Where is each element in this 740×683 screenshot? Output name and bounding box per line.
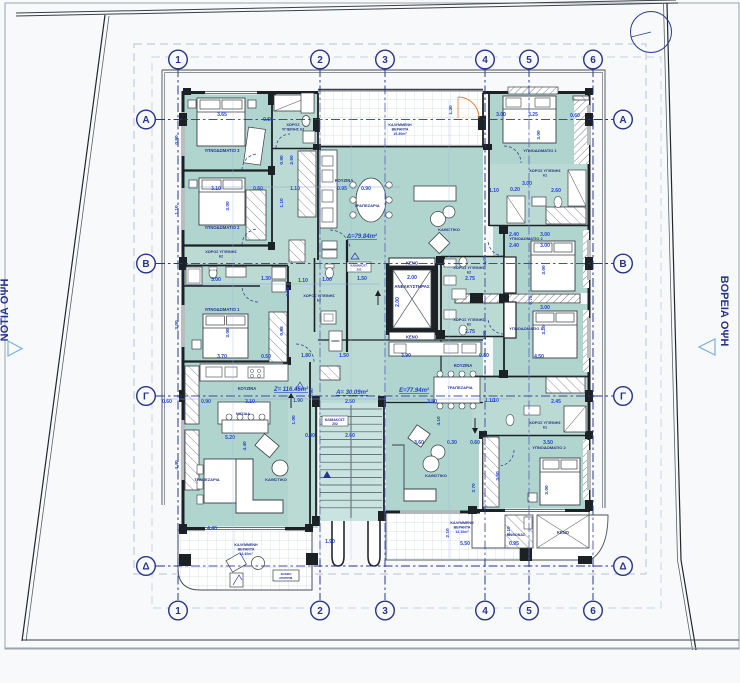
svg-text:Δ: Δ — [142, 562, 149, 573]
svg-text:Α: Α — [142, 115, 149, 126]
svg-text:3.00: 3.00 — [536, 130, 542, 140]
svg-text:ΧΩΡΟΣ ΥΓΙΕΙΝΗΣ: ΧΩΡΟΣ ΥΓΙΕΙΝΗΣ — [453, 266, 485, 270]
svg-text:Β: Β — [619, 259, 626, 270]
svg-text:Γ: Γ — [620, 392, 626, 403]
svg-text:ΒΟΡΕΙΑ ΟΨΗ: ΒΟΡΕΙΑ ΟΨΗ — [718, 276, 730, 347]
svg-text:3.00: 3.00 — [544, 485, 550, 495]
svg-text:2.60: 2.60 — [551, 188, 561, 194]
svg-text:Α= 30.09m²: Α= 30.09m² — [335, 389, 369, 396]
svg-text:3.00: 3.00 — [541, 265, 547, 275]
svg-text:ΚΟΥΖΙΝΑ: ΚΟΥΖΙΝΑ — [335, 178, 354, 183]
svg-text:ΥΠΝΟΔΩΜΑΤΙΟ 2: ΥΠΝΟΔΩΜΑΤΙΟ 2 — [205, 225, 241, 230]
svg-text:1.50: 1.50 — [339, 353, 349, 359]
svg-text:Z= 116.45m²: Z= 116.45m² — [273, 386, 309, 393]
svg-text:ΚΟΥΖΙΝΑ: ΚΟΥΖΙΝΑ — [238, 386, 257, 391]
svg-text:0.30: 0.30 — [447, 440, 457, 446]
svg-text:3.60: 3.60 — [414, 440, 424, 446]
svg-text:2.75: 2.75 — [465, 276, 475, 282]
svg-text:0.60: 0.60 — [263, 117, 273, 123]
svg-text:1.30: 1.30 — [261, 276, 271, 282]
svg-text:ΚΕΝΟ: ΚΕΝΟ — [406, 335, 419, 340]
svg-text:0.20: 0.20 — [510, 187, 520, 193]
svg-text:ΚΑΘΙΣΤΙΚΟ: ΚΑΘΙΣΤΙΚΟ — [265, 477, 287, 482]
svg-text:ΚΑΛΥΜΜΕΝΗ: ΚΑΛΥΜΜΕΝΗ — [234, 543, 258, 547]
svg-text:0.50: 0.50 — [261, 354, 271, 360]
svg-text:3.50: 3.50 — [495, 471, 501, 481]
svg-text:3.00: 3.00 — [211, 277, 221, 283]
svg-text:3.70: 3.70 — [217, 354, 227, 360]
svg-text:ΚΕΝΟ: ΚΕΝΟ — [557, 530, 570, 535]
svg-text:2.40: 2.40 — [509, 232, 519, 238]
svg-text:61: 61 — [543, 426, 547, 430]
svg-text:4.40: 4.40 — [174, 460, 180, 470]
svg-text:2.40: 2.40 — [509, 243, 519, 249]
svg-text:2: 2 — [317, 606, 323, 617]
svg-text:3.00: 3.00 — [540, 243, 550, 249]
svg-text:3.00: 3.00 — [225, 201, 231, 211]
svg-text:2.00: 2.00 — [407, 275, 417, 281]
svg-text:ΚΑΛΥΜΜΕΝΗ: ΚΑΛΥΜΜΕΝΗ — [450, 521, 474, 525]
svg-text:1: 1 — [175, 606, 181, 617]
svg-text:ΧΩΡΟΣ ΥΓΙΕΙΝΗΣ: ΧΩΡΟΣ ΥΓΙΕΙΝΗΣ — [529, 421, 561, 425]
svg-text:ΚΕΝΟ: ΚΕΝΟ — [406, 261, 419, 266]
svg-text:Δ: Δ — [619, 562, 626, 573]
svg-text:62: 62 — [317, 299, 321, 303]
svg-text:1.90: 1.90 — [325, 539, 335, 545]
svg-text:3: 3 — [382, 55, 388, 66]
svg-text:3.00: 3.00 — [225, 328, 231, 338]
svg-text:2.75: 2.75 — [465, 329, 475, 335]
svg-text:61: 61 — [543, 174, 547, 178]
svg-text:5.50: 5.50 — [460, 541, 470, 547]
svg-text:Β: Β — [142, 259, 149, 270]
svg-text:1: 1 — [175, 55, 181, 66]
svg-text:2.45: 2.45 — [551, 399, 561, 405]
svg-text:Α: Α — [619, 115, 626, 126]
svg-text:2: 2 — [317, 55, 323, 66]
svg-text:0.98: 0.98 — [279, 326, 285, 336]
svg-text:0.60: 0.60 — [162, 399, 172, 405]
svg-text:19.30m²: 19.30m² — [393, 132, 407, 136]
svg-text:ΒΕΡΑΝΤΑ: ΒΕΡΑΝΤΑ — [392, 127, 409, 131]
svg-text:ΧΩΡΟΣ ΥΓΙΕΙΝΗΣ: ΧΩΡΟΣ ΥΓΙΕΙΝΗΣ — [205, 250, 237, 254]
svg-text:1.10: 1.10 — [174, 205, 180, 215]
svg-text:ΧΩΡΟΣ ΥΓΙΕΙΝΗΣ: ΧΩΡΟΣ ΥΓΙΕΙΝΗΣ — [453, 318, 485, 322]
svg-text:2.60: 2.60 — [345, 433, 355, 439]
svg-text:202: 202 — [332, 422, 338, 426]
svg-text:2.05: 2.05 — [285, 287, 291, 297]
svg-text:62: 62 — [467, 271, 471, 275]
svg-text:3.00: 3.00 — [540, 232, 550, 238]
svg-text:3.20: 3.20 — [541, 325, 547, 335]
svg-text:3: 3 — [382, 606, 388, 617]
svg-text:4.10: 4.10 — [436, 416, 442, 426]
svg-text:3.70: 3.70 — [471, 483, 477, 493]
svg-text:ΧΩΡΟΣ ΥΓΙΕΙΝΗΣ: ΧΩΡΟΣ ΥΓΙΕΙΝΗΣ — [529, 169, 561, 173]
svg-text:ΚΟΥΖΙΝΑ: ΚΟΥΖΙΝΑ — [454, 363, 473, 368]
svg-text:0.95: 0.95 — [509, 541, 519, 547]
svg-text:2.10: 2.10 — [445, 528, 451, 538]
svg-text:3.90: 3.90 — [401, 353, 411, 359]
svg-text:2.00: 2.00 — [395, 297, 401, 307]
svg-text:1.10: 1.10 — [489, 188, 499, 194]
svg-text:5: 5 — [526, 55, 532, 66]
svg-text:ΥΠΝΟΔΩΜΑΤΙΟ 1: ΥΠΝΟΔΩΜΑΤΙΟ 1 — [509, 326, 543, 331]
svg-text:4: 4 — [482, 55, 488, 66]
svg-text:Γ: Γ — [143, 392, 149, 403]
svg-text:ΧΩΡΟΣ: ΧΩΡΟΣ — [286, 123, 300, 127]
svg-text:ΤΡΑΠΕΖΑΡΙΑ: ΤΡΑΠΕΖΑΡΙΑ — [447, 385, 472, 390]
svg-text:4.40: 4.40 — [242, 441, 248, 451]
svg-text:3.00: 3.00 — [496, 112, 506, 118]
svg-text:1.10: 1.10 — [279, 198, 285, 208]
svg-text:3.10: 3.10 — [245, 399, 255, 405]
svg-text:ΥΠΝΟΔΩΜΑΤΙΟ 1: ΥΠΝΟΔΩΜΑΤΙΟ 1 — [205, 307, 241, 312]
svg-text:ΥΠΝΟΔΩΜΑΤΙΟ 1: ΥΠΝΟΔΩΜΑΤΙΟ 1 — [523, 148, 557, 153]
svg-text:3.25: 3.25 — [528, 112, 538, 118]
svg-text:4.40: 4.40 — [207, 526, 217, 532]
svg-text:3.50: 3.50 — [543, 440, 553, 446]
svg-text:0.60: 0.60 — [470, 440, 480, 446]
svg-text:5.20: 5.20 — [225, 435, 235, 441]
svg-text:ΧΩΡΟΣ ΥΓΙΕΙΝΗΣ: ΧΩΡΟΣ ΥΓΙΕΙΝΗΣ — [303, 294, 335, 298]
svg-text:3.00: 3.00 — [540, 305, 550, 311]
svg-text:2.50: 2.50 — [289, 155, 295, 165]
svg-text:2.10: 2.10 — [506, 526, 512, 536]
svg-text:3.65: 3.65 — [217, 112, 227, 118]
svg-text:5: 5 — [526, 606, 532, 617]
svg-text:14.40m²: 14.40m² — [239, 552, 253, 556]
svg-text:1.00: 1.00 — [291, 415, 297, 425]
svg-text:ΤΡΑΠΕΖΑΡΙΑ: ΤΡΑΠΕΖΑΡΙΑ — [354, 203, 379, 208]
svg-text:ΚΑΛΥΜΜΕΝΗ: ΚΑΛΥΜΜΕΝΗ — [388, 123, 412, 127]
svg-text:0.30: 0.30 — [305, 433, 315, 439]
svg-text:0.90: 0.90 — [279, 155, 285, 165]
svg-text:4.50: 4.50 — [534, 354, 544, 360]
svg-text:12.10m²: 12.10m² — [455, 530, 469, 534]
svg-text:6: 6 — [590, 606, 596, 617]
svg-text:ΤΡΑΠΕΖΑΡΙΑ: ΤΡΑΠΕΖΑΡΙΑ — [194, 477, 219, 482]
svg-text:0.90: 0.90 — [174, 135, 180, 145]
svg-text:0.60: 0.60 — [570, 113, 580, 119]
svg-text:1.80: 1.80 — [301, 353, 311, 359]
svg-text:2.50: 2.50 — [345, 399, 355, 405]
svg-text:ΒΕΡΑΝΤΑ: ΒΕΡΑΝΤΑ — [454, 525, 471, 529]
svg-text:0.90: 0.90 — [201, 399, 211, 405]
svg-text:1.50: 1.50 — [357, 276, 367, 282]
svg-text:ΝΟΤΙΑ ΟΨΗ: ΝΟΤΙΑ ΟΨΗ — [0, 279, 11, 342]
svg-text:ΥΠΝΟΔΩΜΑΤΙΟ 3: ΥΠΝΟΔΩΜΑΤΙΟ 3 — [205, 148, 241, 153]
svg-text:62: 62 — [467, 323, 471, 327]
svg-text:62: 62 — [219, 255, 223, 259]
svg-text:6: 6 — [590, 55, 596, 66]
svg-text:ΝΗΣΙΔΑ: ΝΗΣΙΔΑ — [236, 412, 251, 416]
svg-text:ΚΕΝΟ: ΚΕΝΟ — [331, 339, 340, 343]
svg-text:ΚΑΘΙΣΤΙΚΟ: ΚΑΘΙΣΤΙΚΟ — [425, 473, 447, 478]
svg-text:3.00: 3.00 — [174, 320, 180, 330]
svg-text:3.00: 3.00 — [522, 181, 532, 187]
svg-text:ΑΝΕΛΚΥΣΤΗΡΑΣ: ΑΝΕΛΚΥΣΤΗΡΑΣ — [394, 284, 430, 289]
svg-text:4: 4 — [482, 606, 488, 617]
svg-text:1.00: 1.00 — [322, 277, 332, 283]
svg-text:202: 202 — [357, 268, 362, 272]
svg-text:0.80: 0.80 — [479, 353, 489, 359]
svg-text:ΒΕΡΑΝΤΑ: ΒΕΡΑΝΤΑ — [238, 547, 255, 551]
svg-text:1.10: 1.10 — [298, 278, 308, 284]
svg-text:3.50: 3.50 — [427, 399, 437, 405]
svg-text:E=77.94m²: E=77.94m² — [399, 387, 430, 394]
svg-text:ΥΓΙΕΙΝΗΣ 63: ΥΓΙΕΙΝΗΣ 63 — [282, 128, 305, 132]
svg-text:ΑΠΟΡΡΙΜ.: ΑΠΟΡΡΙΜ. — [279, 576, 293, 580]
